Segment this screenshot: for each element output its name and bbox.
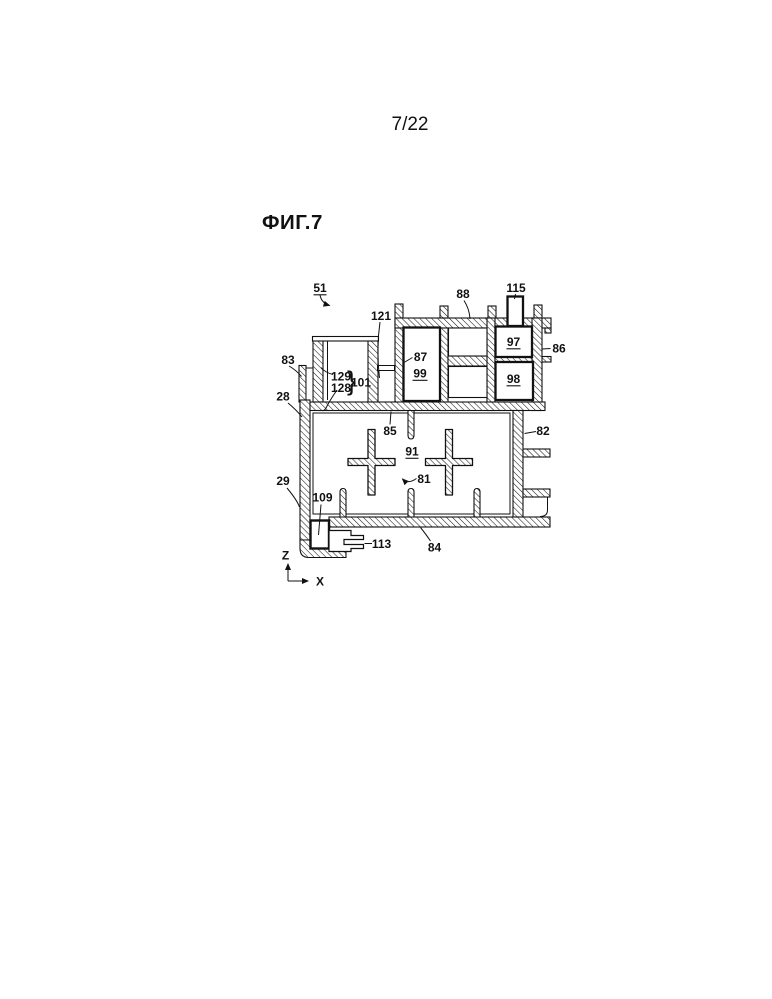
leader-82 — [525, 432, 537, 434]
top-fin-2 — [488, 306, 496, 318]
hanging-rib-top — [408, 411, 414, 440]
leader-29 — [287, 488, 300, 507]
right-wall-82 — [513, 411, 523, 528]
page-number: 7/22 — [392, 114, 429, 135]
tab-83-slot — [306, 368, 313, 402]
patent-figure-canvas: 7/22 ФИГ.7 — [0, 0, 772, 999]
ref-label-101: 101 — [351, 376, 371, 390]
ref-label-99: 99 — [413, 367, 427, 381]
z-axis-label: Z — [282, 549, 289, 563]
ref-label-88: 88 — [456, 287, 470, 301]
channel-121-rim — [378, 366, 395, 371]
left-wall-28-29 — [300, 400, 310, 540]
cross-stirrer-left — [348, 430, 395, 496]
bottom-wall-84 — [329, 517, 550, 527]
x-axis-label: X — [316, 575, 324, 589]
ref-label-86: 86 — [552, 342, 566, 356]
ref-label-91: 91 — [405, 445, 419, 459]
ref-label-81: 81 — [417, 472, 431, 486]
top-fin-1 — [440, 306, 448, 318]
ref-label-97: 97 — [507, 335, 521, 349]
figure-title: ФИГ.7 — [262, 211, 323, 234]
port-115 — [508, 297, 524, 327]
page-header: 7/22 — [392, 114, 429, 135]
ref-label-83: 83 — [281, 353, 295, 367]
right-bottom-recess-edge — [540, 498, 548, 517]
ref-label-84: 84 — [428, 541, 442, 555]
top-fin-3 — [534, 305, 542, 318]
bottom-rib-1 — [340, 489, 346, 518]
patent-drawing-page: 7/22 ФИГ.7 — [0, 0, 772, 999]
top-wall-right-lip — [545, 328, 551, 333]
ref-label-98: 98 — [507, 372, 521, 386]
leader-86 — [542, 349, 551, 350]
wall-right-of-chamber-99 — [440, 328, 448, 411]
leader-84 — [421, 528, 431, 542]
leader-81 — [403, 479, 417, 482]
bottom-rib-3 — [474, 489, 480, 518]
leader-88 — [464, 301, 470, 320]
right-fin-lower — [523, 489, 550, 497]
ref-label-109: 109 — [312, 491, 332, 505]
tab-83-strip — [299, 366, 306, 403]
ref-label-113: 113 — [372, 537, 392, 551]
ref-label-29: 29 — [276, 474, 290, 488]
ref-label-51: 51 — [313, 281, 327, 295]
right-fin-upper — [523, 449, 550, 457]
mid-cavity-lower — [449, 367, 488, 398]
cross-stirrer-right — [426, 430, 473, 496]
ref-label-82: 82 — [536, 424, 550, 438]
wall-mid-right — [487, 318, 495, 411]
container-right-wall — [368, 340, 378, 402]
ref-label-28: 28 — [276, 390, 290, 404]
bottom-rib-2 — [408, 489, 414, 518]
ref-label-115: 115 — [506, 281, 526, 295]
container-top-plate — [313, 337, 379, 342]
divider-bar-85 — [300, 402, 545, 411]
figure-drawing: 51 121 88 115 86 83 87 99 97 98 129 128 … — [276, 281, 566, 589]
mid-cavity-upper — [449, 328, 488, 356]
filter-box-99 — [404, 328, 441, 402]
ref-label-87: 87 — [414, 350, 428, 364]
mid-compartment-divider — [448, 356, 488, 366]
leader-51 — [320, 295, 330, 306]
ref-label-85: 85 — [383, 424, 397, 438]
ref-label-121: 121 — [371, 309, 391, 323]
container-left-wall — [313, 340, 323, 402]
nozzle-113 — [329, 531, 364, 552]
